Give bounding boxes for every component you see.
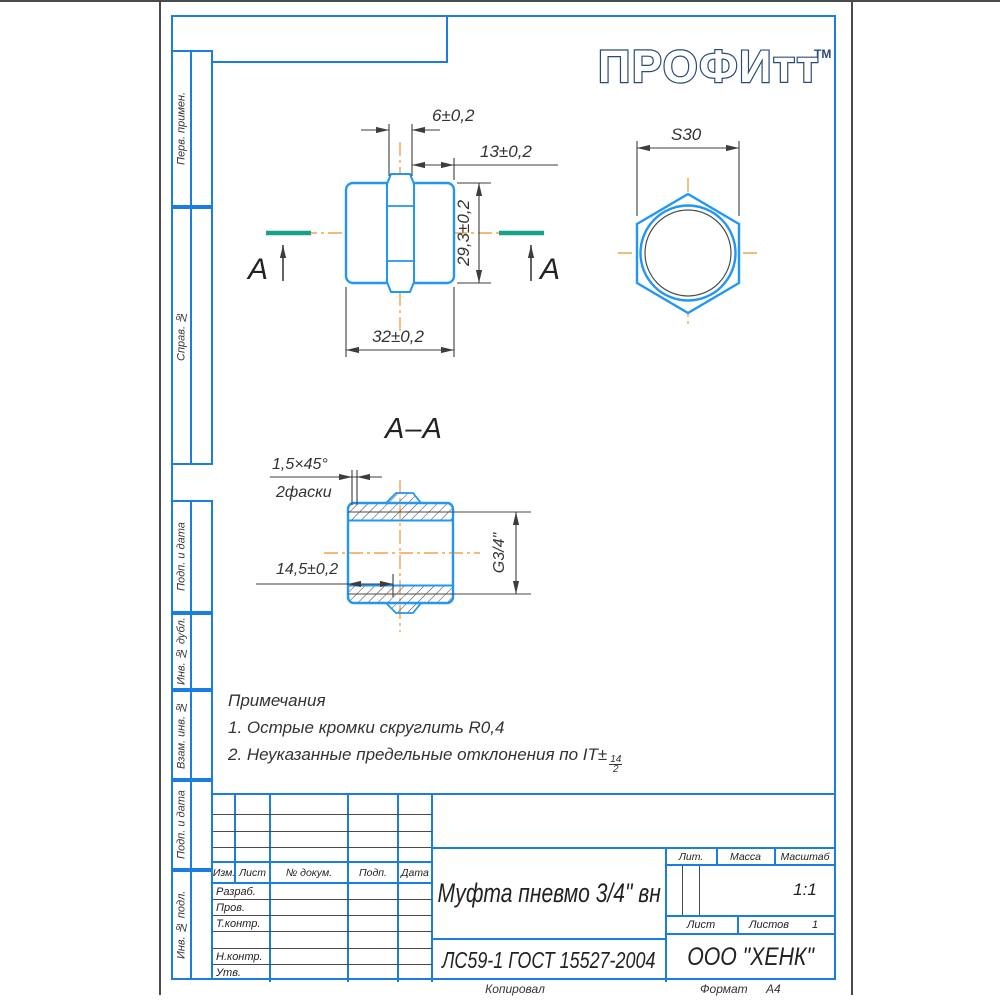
- tb-line: [699, 866, 700, 916]
- dim-thread-length: 13±0,2: [480, 142, 532, 161]
- tb-sheet-label: Лист: [665, 917, 737, 933]
- note-2-text: 2. Неуказанные предельные отклонения по …: [228, 745, 607, 764]
- section-letter-left: А: [246, 253, 268, 286]
- tb-line: [347, 795, 349, 863]
- tb-line: [269, 795, 271, 863]
- dim-thread-size: G3/4": [491, 532, 508, 574]
- title-block: Изм. Лист № докум. Подп. Дата Разраб. Пр…: [213, 793, 836, 980]
- footer-format-value: А4: [766, 982, 781, 996]
- tb-company: ООО "ХЕНК": [665, 935, 836, 980]
- dim-chamfer-count: 2фаски: [275, 484, 332, 501]
- dim-height: 29,3±0,2: [454, 199, 473, 267]
- tb-col-docnum: № докум.: [270, 865, 348, 881]
- note-1: 1. Острые кромки скруглить R0,4: [228, 718, 504, 738]
- tb-line: [665, 864, 836, 866]
- section-title: А–А: [383, 413, 443, 445]
- fraction-denominator: 2: [609, 765, 622, 774]
- note-2-fraction: 142: [609, 755, 622, 774]
- tb-col-data: Дата: [398, 865, 432, 881]
- dim-length: 32±0,2: [372, 327, 424, 346]
- tb-line: [213, 831, 432, 832]
- tb-line: [213, 847, 432, 848]
- hex-strip: [387, 174, 414, 292]
- hex-bump-bottom: [386, 603, 421, 613]
- tb-row-utv: Утв.: [216, 965, 241, 980]
- tb-line: [397, 795, 399, 863]
- tb-scale-value: 1:1: [774, 870, 836, 910]
- part-name-text: Муфта пневмо 3/4" вн: [437, 878, 660, 909]
- tb-sheets-value: 1: [803, 917, 827, 933]
- note-2: 2. Неуказанные предельные отклонения по …: [228, 745, 622, 774]
- tb-line: [682, 866, 683, 916]
- material-text: ЛС59-1 ГОСТ 15527-2004: [442, 947, 655, 974]
- tb-row-tkontr: Т.контр.: [216, 916, 260, 931]
- tb-mass-label: Масса: [717, 850, 774, 864]
- tb-line: [213, 964, 432, 965]
- tb-scale-label: Масштаб: [774, 850, 836, 864]
- tb-lit-label: Лит.: [665, 850, 717, 864]
- tb-part-name: Муфта пневмо 3/4" вн: [433, 851, 665, 936]
- hex-end-view: S30: [618, 125, 758, 328]
- section-letter-right: А: [538, 253, 560, 286]
- tb-col-list: Лист: [235, 865, 270, 881]
- front-view: А А 6±0,2 13±0,2 29,3±0,2 32±0,2: [246, 106, 560, 357]
- dim-thread-depth: 14,5±0,2: [276, 561, 338, 578]
- company-text: ООО "ХЕНК": [687, 943, 814, 972]
- tb-line: [234, 795, 236, 863]
- tb-line: [213, 899, 432, 900]
- tb-col-izm: Изм.: [213, 865, 235, 881]
- tb-line: [213, 814, 432, 815]
- tb-line: [213, 861, 433, 863]
- tb-line: [213, 931, 432, 932]
- dim-chamfer: 1,5×45°: [272, 456, 328, 473]
- tb-sheets-label: Листов: [739, 917, 799, 933]
- tb-row-nkontr: Н.контр.: [216, 949, 263, 964]
- footer-format-label: Формат: [700, 982, 748, 996]
- drawing-page: Перв. примен. Справ. № Подп. и дата Инв.…: [0, 0, 1000, 1000]
- notes-heading: Примечания: [228, 691, 326, 711]
- tb-material: ЛС59-1 ГОСТ 15527-2004: [433, 940, 665, 980]
- section-view: А–А 1,5×45° 2фаски 14,5±0,2 G3/: [256, 413, 531, 632]
- dim-across-flats: S30: [671, 125, 702, 144]
- dim-hex-width: 6±0,2: [432, 106, 475, 125]
- tb-row-razrab: Разраб.: [216, 884, 256, 899]
- tb-col-podp: Подп.: [348, 865, 398, 881]
- ext-lines: [352, 470, 357, 505]
- hex-outline: [637, 194, 739, 313]
- hex-bump-top: [386, 493, 421, 503]
- tb-row-prov: Пров.: [216, 900, 245, 915]
- footer-copied: Копировал: [440, 982, 590, 996]
